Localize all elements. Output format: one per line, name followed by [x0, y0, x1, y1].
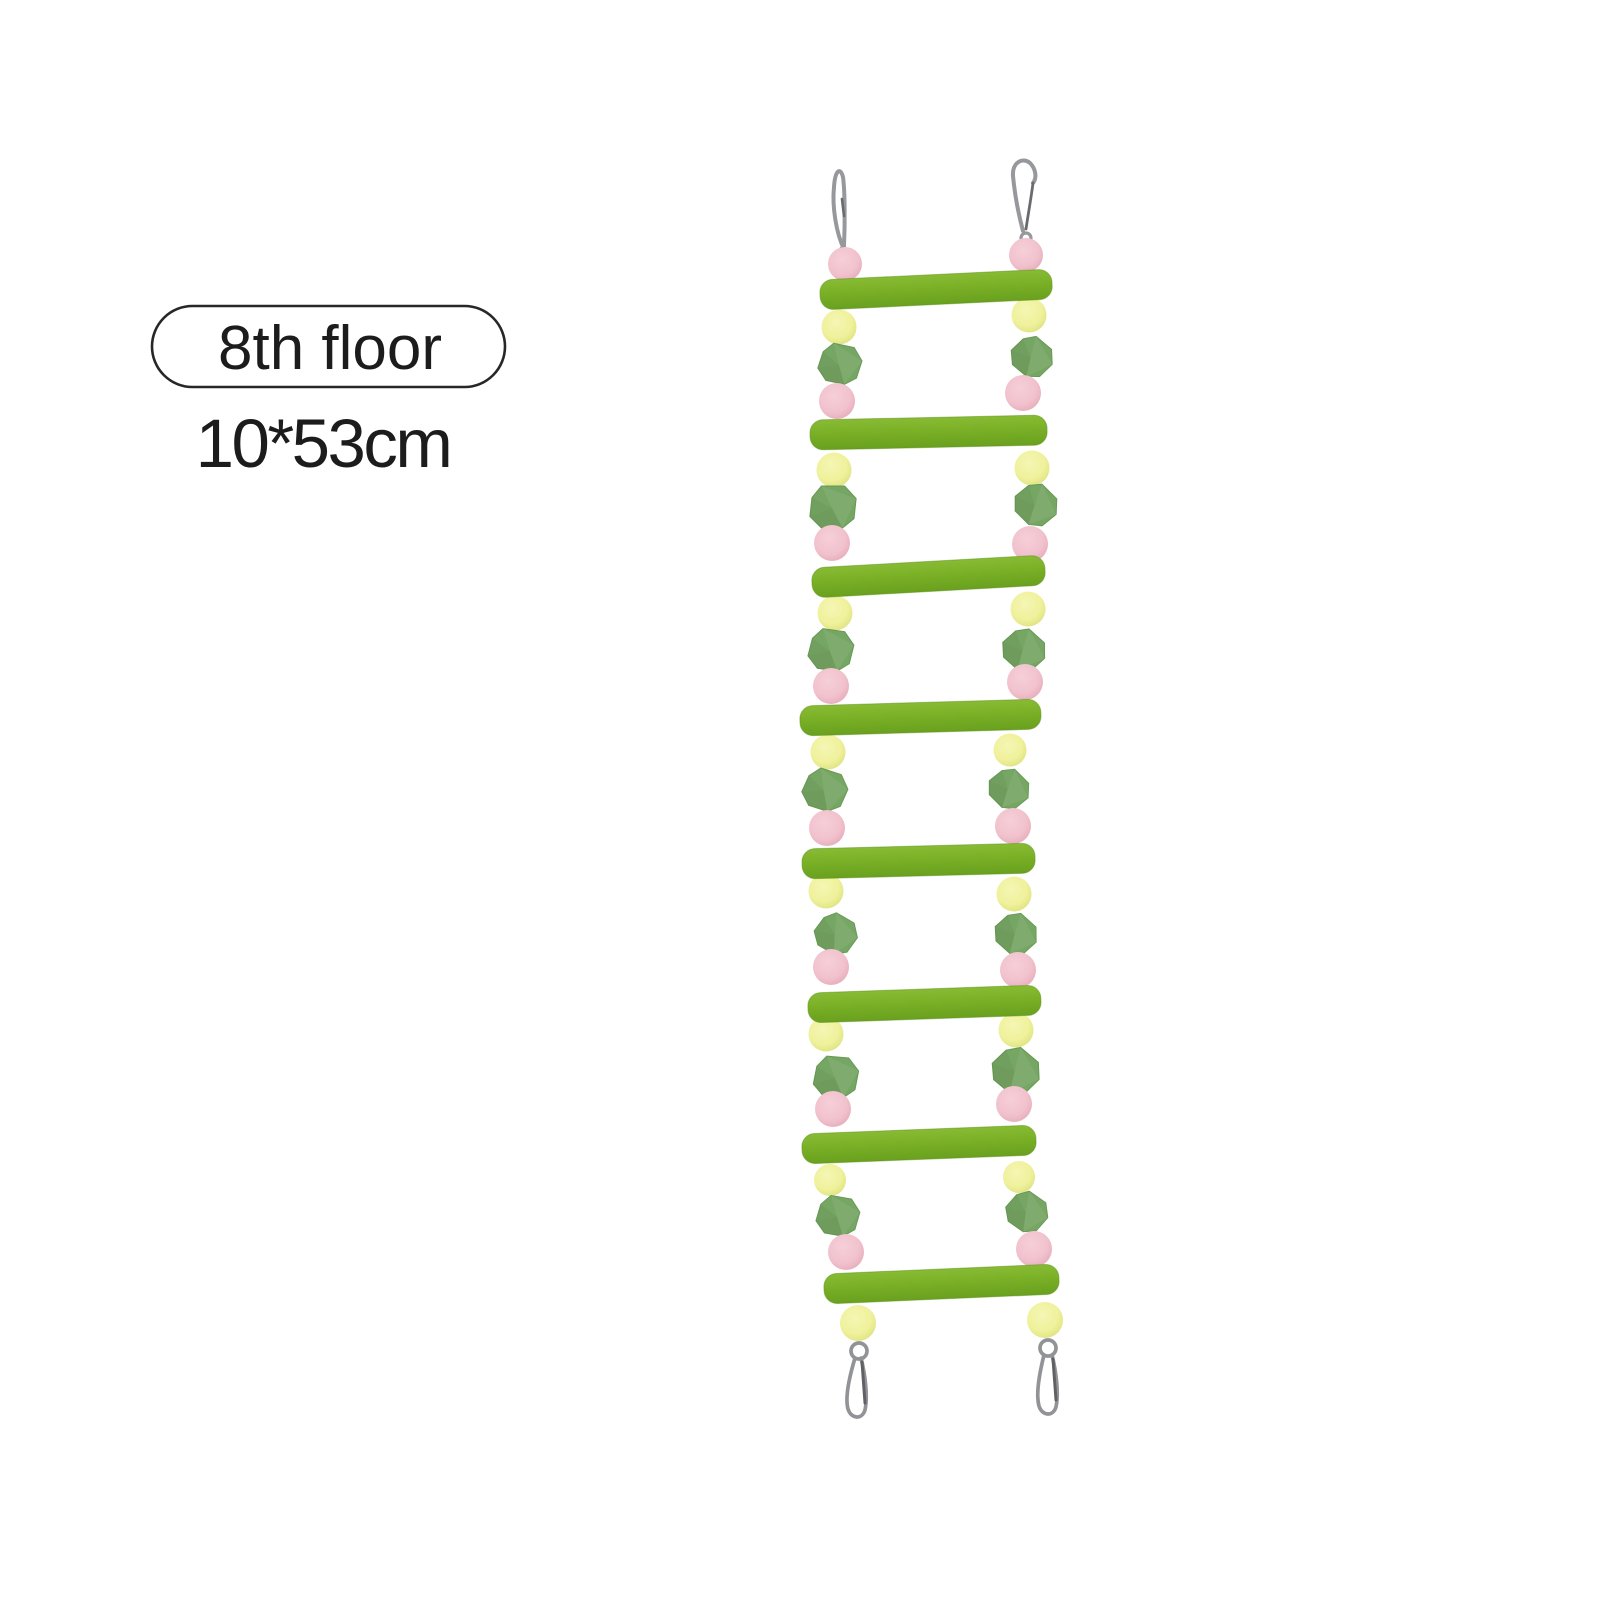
svg-text:10*53cm: 10*53cm	[196, 405, 451, 482]
svg-text:8th floor: 8th floor	[218, 314, 442, 383]
